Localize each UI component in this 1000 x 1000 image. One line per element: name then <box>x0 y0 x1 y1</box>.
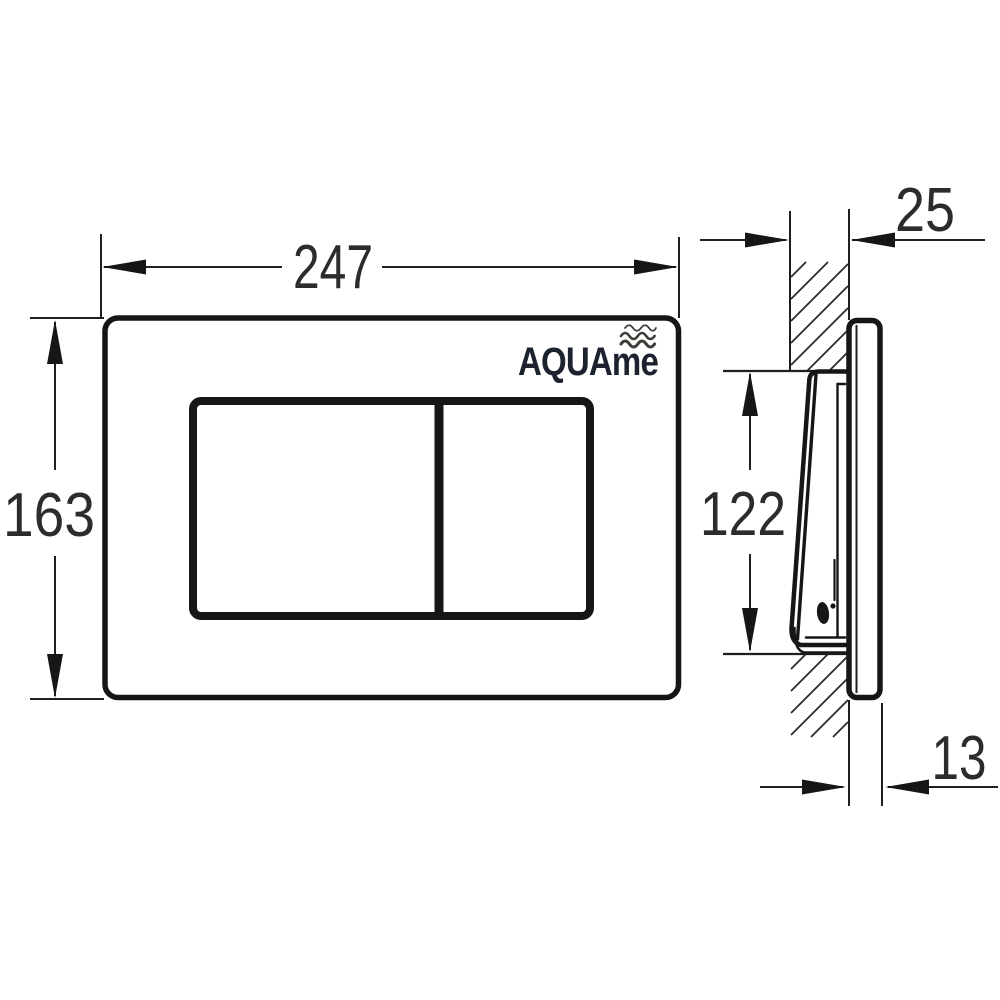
side-view: 25 122 13 <box>700 176 998 806</box>
dim-depth-label: 25 <box>895 176 955 245</box>
plate-side-profile <box>849 321 880 698</box>
drawing-svg: AQUAme 247 163 <box>0 0 1000 1000</box>
dim-front-width: 247 <box>101 233 679 318</box>
dim-recess-depth: 25 <box>700 176 985 248</box>
technical-drawing: AQUAme 247 163 <box>0 0 1000 1000</box>
dim-plate-thickness: 13 <box>760 703 998 806</box>
wall-hatching-lower <box>791 654 848 737</box>
arrowhead-left-inward <box>851 233 895 248</box>
brand-text: AQUAme <box>518 340 658 384</box>
valve-dot <box>830 603 835 608</box>
arrowhead-down <box>742 608 758 652</box>
arrowhead-up <box>742 372 758 416</box>
valve-detail <box>816 601 831 624</box>
flush-buttons-outline <box>193 401 590 616</box>
arrowhead-down <box>47 654 63 698</box>
arrowhead-up <box>47 320 63 364</box>
arrowhead-right-inward <box>745 233 789 248</box>
flush-buttons <box>193 401 590 616</box>
dim-thickness-label: 13 <box>932 724 987 793</box>
dim-front-height: 163 <box>3 318 104 699</box>
dim-opening-height-label: 122 <box>700 480 786 549</box>
front-view: AQUAme 247 163 <box>3 233 679 699</box>
dim-height-label: 163 <box>3 481 95 550</box>
arrowhead-left-inward <box>885 780 929 795</box>
cistern-mechanism <box>792 372 846 653</box>
dim-opening-height: 122 <box>700 372 786 652</box>
arrowhead-right-inward <box>802 780 846 795</box>
wall-hatching-upper <box>791 262 848 371</box>
arrowhead-right <box>634 260 678 275</box>
dim-width-label: 247 <box>293 233 373 302</box>
arrowhead-left <box>102 260 146 275</box>
